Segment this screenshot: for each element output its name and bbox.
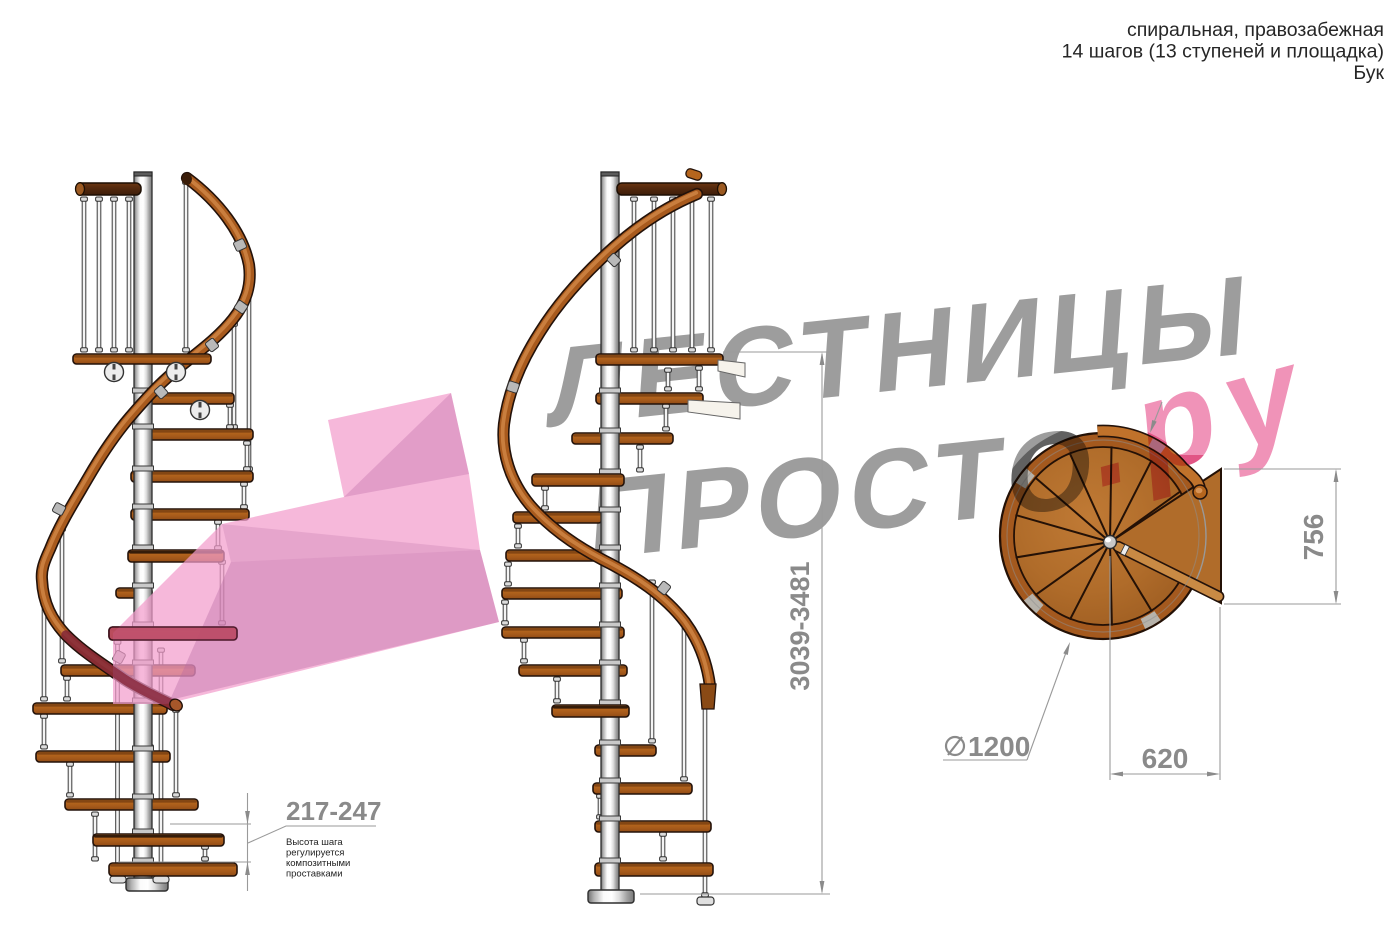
svg-text:1200: 1200: [968, 731, 1030, 762]
svg-text:спиральная, правозабежная: спиральная, правозабежная: [1127, 19, 1384, 41]
svg-text:Бук: Бук: [1353, 62, 1384, 84]
svg-text:проставками: проставками: [286, 869, 343, 880]
svg-text:217-247: 217-247: [286, 796, 381, 826]
svg-text:620: 620: [1142, 743, 1189, 774]
svg-text:3039-3481: 3039-3481: [785, 561, 815, 690]
svg-text:регулируется: регулируется: [286, 848, 344, 859]
svg-text:Высота шага: Высота шага: [286, 837, 343, 848]
svg-text:14 шагов (13 ступеней и площад: 14 шагов (13 ступеней и площадка): [1062, 41, 1384, 63]
svg-text:композитными: композитными: [286, 858, 350, 869]
svg-text:756: 756: [1298, 514, 1329, 561]
